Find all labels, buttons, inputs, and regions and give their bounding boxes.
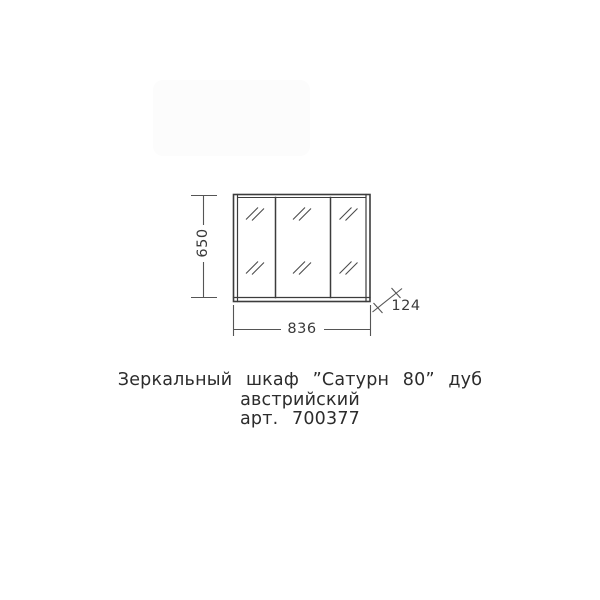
article-number: арт. 700377	[0, 410, 600, 430]
mirror-hatch-icon	[293, 262, 311, 275]
mirror-hatch-icon	[340, 208, 358, 221]
cabinet-technical-drawing	[0, 0, 600, 600]
product-dimension-diagram: 650 836 124 Зеркальный шкаф ”Сатурн 80” …	[0, 0, 600, 600]
width-dimension-label: 836	[287, 321, 316, 337]
depth-dimension-label: 124	[391, 298, 420, 314]
mirror-hatch-icon	[340, 262, 358, 275]
height-dimension-label: 650	[195, 228, 211, 257]
mirror-hatch-icon	[246, 208, 264, 221]
product-title-line2: австрийский	[0, 391, 600, 411]
mirror-hatch-icon	[293, 208, 311, 221]
mirror-glass-hatches	[246, 208, 358, 275]
product-caption: Зеркальный шкаф ”Сатурн 80” дуб австрийс…	[0, 371, 600, 430]
product-title-line1: Зеркальный шкаф ”Сатурн 80” дуб	[0, 371, 600, 391]
mirror-hatch-icon	[246, 262, 264, 275]
